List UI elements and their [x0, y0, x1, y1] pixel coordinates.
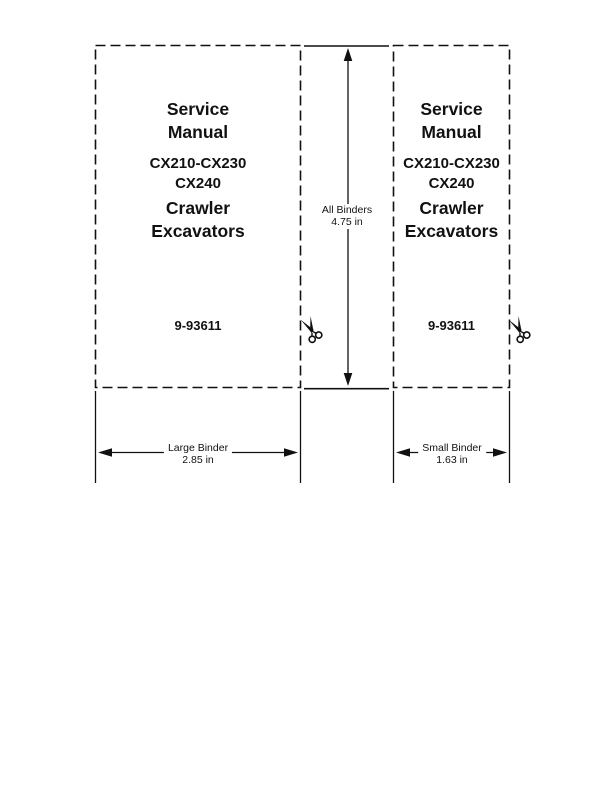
dimension-value: 2.85 in: [168, 455, 228, 467]
scissors-icon: [300, 314, 323, 343]
large-binder-part-number: 9-93611: [95, 318, 301, 333]
cut-lines-artwork: [0, 0, 612, 792]
width-extension-lines: [96, 391, 510, 483]
dimension-name: All Binders: [322, 205, 372, 217]
small-binder-product: Crawler Excavators: [393, 197, 510, 242]
small-binder-width-label: Small Binder 1.63 in: [418, 442, 486, 467]
arrowhead-up-icon: [344, 48, 353, 61]
scissors-icon: [508, 314, 531, 343]
title-line: Service: [95, 98, 301, 121]
small-binder-part-number: 9-93611: [393, 318, 510, 333]
title-line: Manual: [393, 121, 510, 144]
large-binder-product: Crawler Excavators: [95, 197, 301, 242]
dimension-value: 4.75 in: [322, 217, 372, 229]
large-binder-title: Service Manual: [95, 98, 301, 144]
model-line: CX210-CX230: [393, 154, 510, 174]
title-line: Manual: [95, 121, 301, 144]
model-line: CX240: [393, 174, 510, 194]
arrowhead-right-icon: [284, 448, 298, 456]
arrowhead-left-icon: [396, 448, 410, 456]
dimension-value: 1.63 in: [422, 455, 482, 467]
small-binder-model: CX210-CX230 CX240: [393, 154, 510, 194]
product-line: Crawler: [393, 197, 510, 220]
dimension-name: Small Binder: [422, 443, 482, 455]
arrowhead-right-icon: [493, 448, 507, 456]
arrowhead-down-icon: [344, 373, 353, 386]
product-line: Crawler: [95, 197, 301, 220]
arrowhead-left-icon: [98, 448, 112, 456]
title-line: Service: [393, 98, 510, 121]
product-line: Excavators: [95, 220, 301, 243]
large-binder-model: CX210-CX230 CX240: [95, 154, 301, 194]
dimension-name: Large Binder: [168, 443, 228, 455]
large-binder-width-label: Large Binder 2.85 in: [164, 442, 232, 467]
binder-spine-label-sheet: Service Manual CX210-CX230 CX240 Crawler…: [0, 0, 612, 792]
product-line: Excavators: [393, 220, 510, 243]
small-binder-title: Service Manual: [393, 98, 510, 144]
model-line: CX210-CX230: [95, 154, 301, 174]
model-line: CX240: [95, 174, 301, 194]
all-binders-height-label: All Binders 4.75 in: [318, 204, 376, 229]
